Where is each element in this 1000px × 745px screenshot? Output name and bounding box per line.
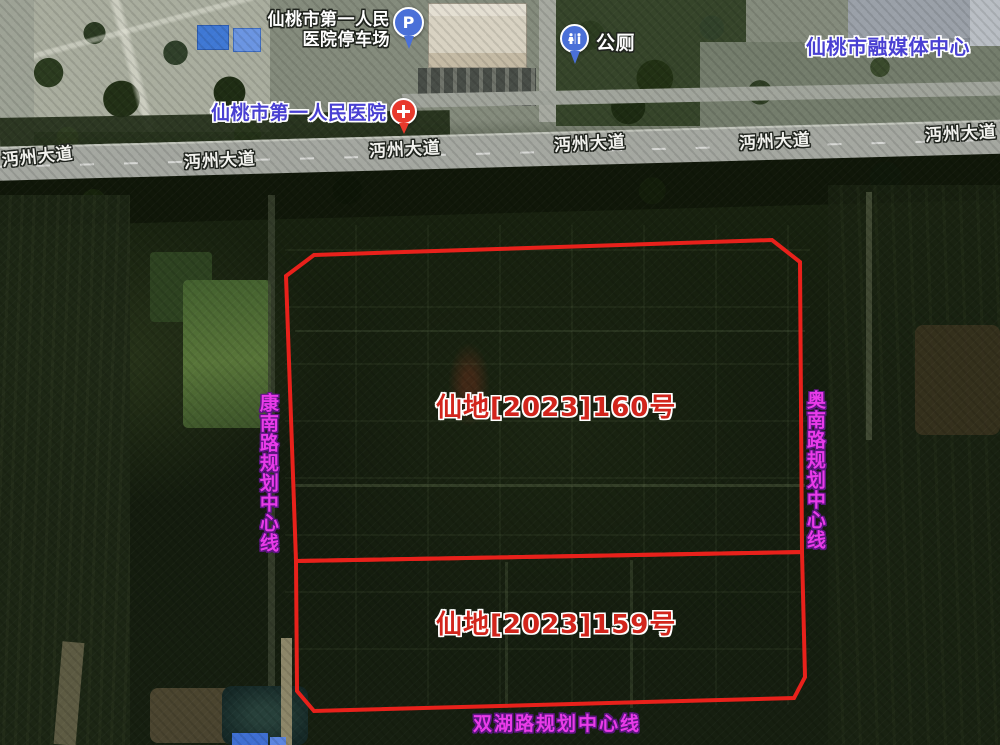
satellite-map: P 仙桃市第一人民 医院停车场 公厕 仙桃市融媒体中心 仙桃市第一人民医院 沔州… xyxy=(0,0,1000,745)
hospital-label: 仙桃市第一人民医院 xyxy=(211,103,387,125)
parcel-160-label: 仙地[2023]160号 xyxy=(436,394,676,424)
road-label-mianzhou-avenue: 沔州大道 xyxy=(553,133,626,156)
public-toilet-label: 公厕 xyxy=(596,33,635,55)
cross-icon xyxy=(397,105,410,118)
parking-lot-label-line1: 仙桃市第一人民 xyxy=(250,11,390,31)
parking-lot-label-line2: 医院停车场 xyxy=(250,31,390,51)
planning-line-kangnan-label: 康南路规划中心线 xyxy=(256,393,278,553)
parcel-159-label: 仙地[2023]159号 xyxy=(436,611,676,641)
restroom-figures-icon xyxy=(567,33,583,44)
toilet-pin-head xyxy=(560,24,589,53)
hospital-pin-tail xyxy=(399,123,409,134)
road-label-mianzhou-avenue: 沔州大道 xyxy=(924,123,997,146)
toilet-pin-icon[interactable] xyxy=(560,24,589,53)
parking-pin-icon[interactable]: P xyxy=(393,7,424,38)
road-label-mianzhou-avenue: 沔州大道 xyxy=(368,139,441,162)
hospital-pin-head xyxy=(390,98,417,125)
parking-pin-letter: P xyxy=(403,13,415,32)
planning-line-shuanghu-label: 双湖路规划中心线 xyxy=(473,714,641,736)
road-label-mianzhou-avenue: 沔州大道 xyxy=(183,150,256,173)
road-label-mianzhou-avenue: 沔州大道 xyxy=(738,131,811,154)
toilet-pin-tail xyxy=(570,51,580,64)
parking-pin-tail xyxy=(404,36,414,49)
parking-lot-label: 仙桃市第一人民 医院停车场 xyxy=(250,11,390,50)
hospital-pin-icon[interactable] xyxy=(390,98,417,125)
media-center-label: 仙桃市融媒体中心 xyxy=(806,36,970,59)
parking-pin-head: P xyxy=(393,7,424,38)
planning-line-aonan-label: 奥南路规划中心线 xyxy=(803,390,825,550)
